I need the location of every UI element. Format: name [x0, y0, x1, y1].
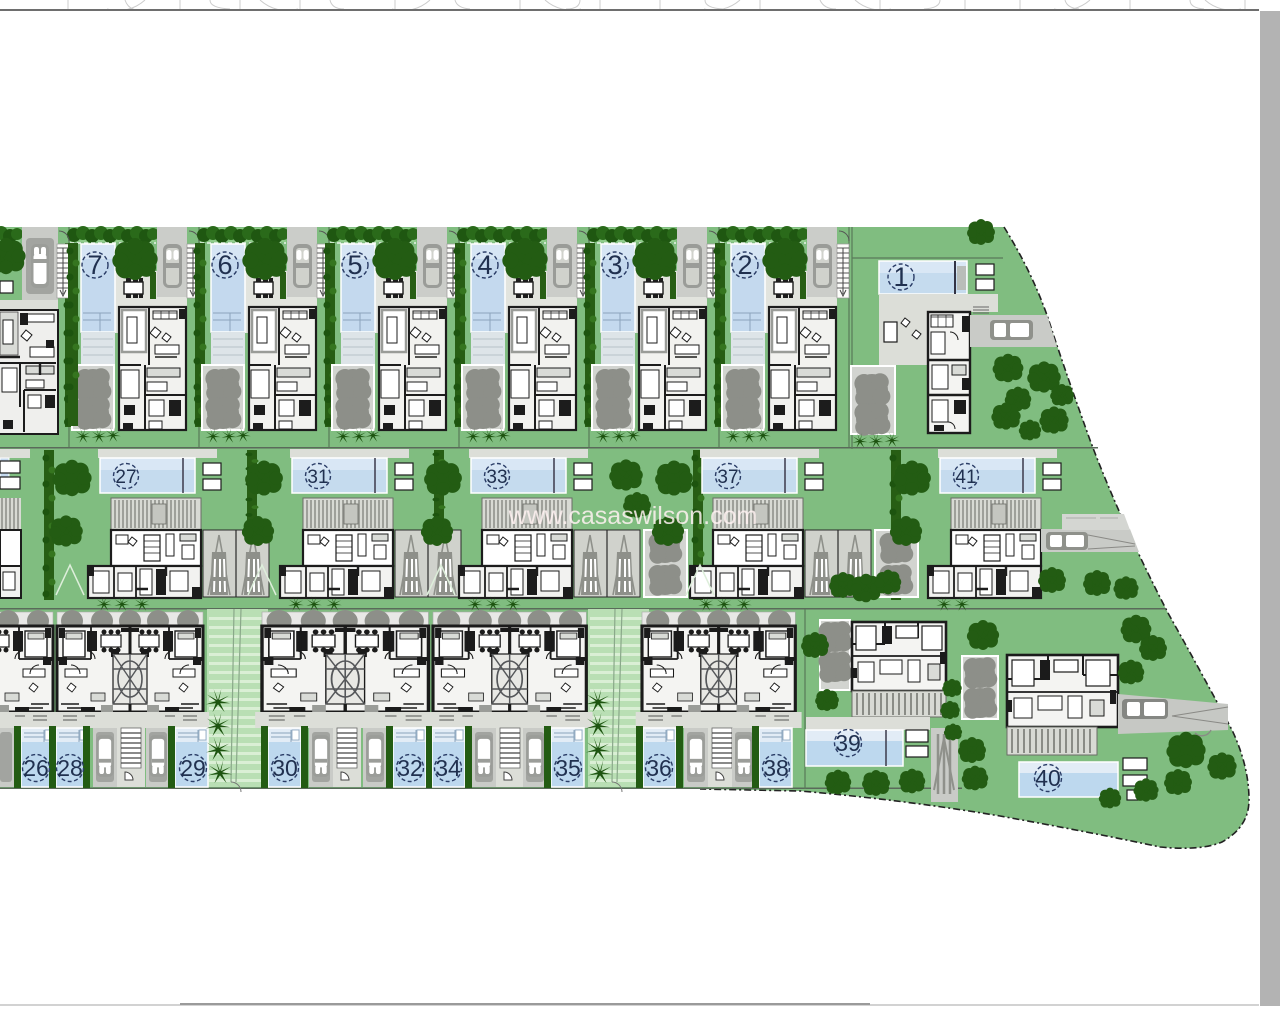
svg-text:32: 32 [397, 755, 423, 781]
svg-text:38: 38 [763, 755, 789, 781]
svg-text:35: 35 [555, 755, 581, 781]
svg-text:30: 30 [272, 755, 298, 781]
svg-text:1: 1 [893, 262, 908, 292]
svg-text:5: 5 [347, 250, 362, 280]
svg-text:4: 4 [477, 250, 492, 280]
svg-text:33: 33 [486, 467, 507, 488]
svg-text:39: 39 [835, 730, 861, 756]
svg-text:www.casaswilson.com: www.casaswilson.com [508, 502, 758, 530]
svg-text:36: 36 [646, 755, 672, 781]
svg-text:34: 34 [435, 755, 461, 781]
svg-text:3: 3 [607, 250, 622, 280]
svg-text:27: 27 [115, 467, 136, 488]
svg-text:31: 31 [307, 467, 328, 488]
svg-text:26: 26 [23, 755, 49, 781]
svg-text:41: 41 [955, 467, 976, 488]
svg-text:2: 2 [737, 250, 752, 280]
svg-text:29: 29 [180, 755, 206, 781]
svg-text:6: 6 [217, 250, 232, 280]
svg-text:7: 7 [87, 250, 102, 280]
svg-text:40: 40 [1035, 765, 1061, 791]
svg-text:28: 28 [57, 755, 83, 781]
svg-text:37: 37 [717, 467, 738, 488]
